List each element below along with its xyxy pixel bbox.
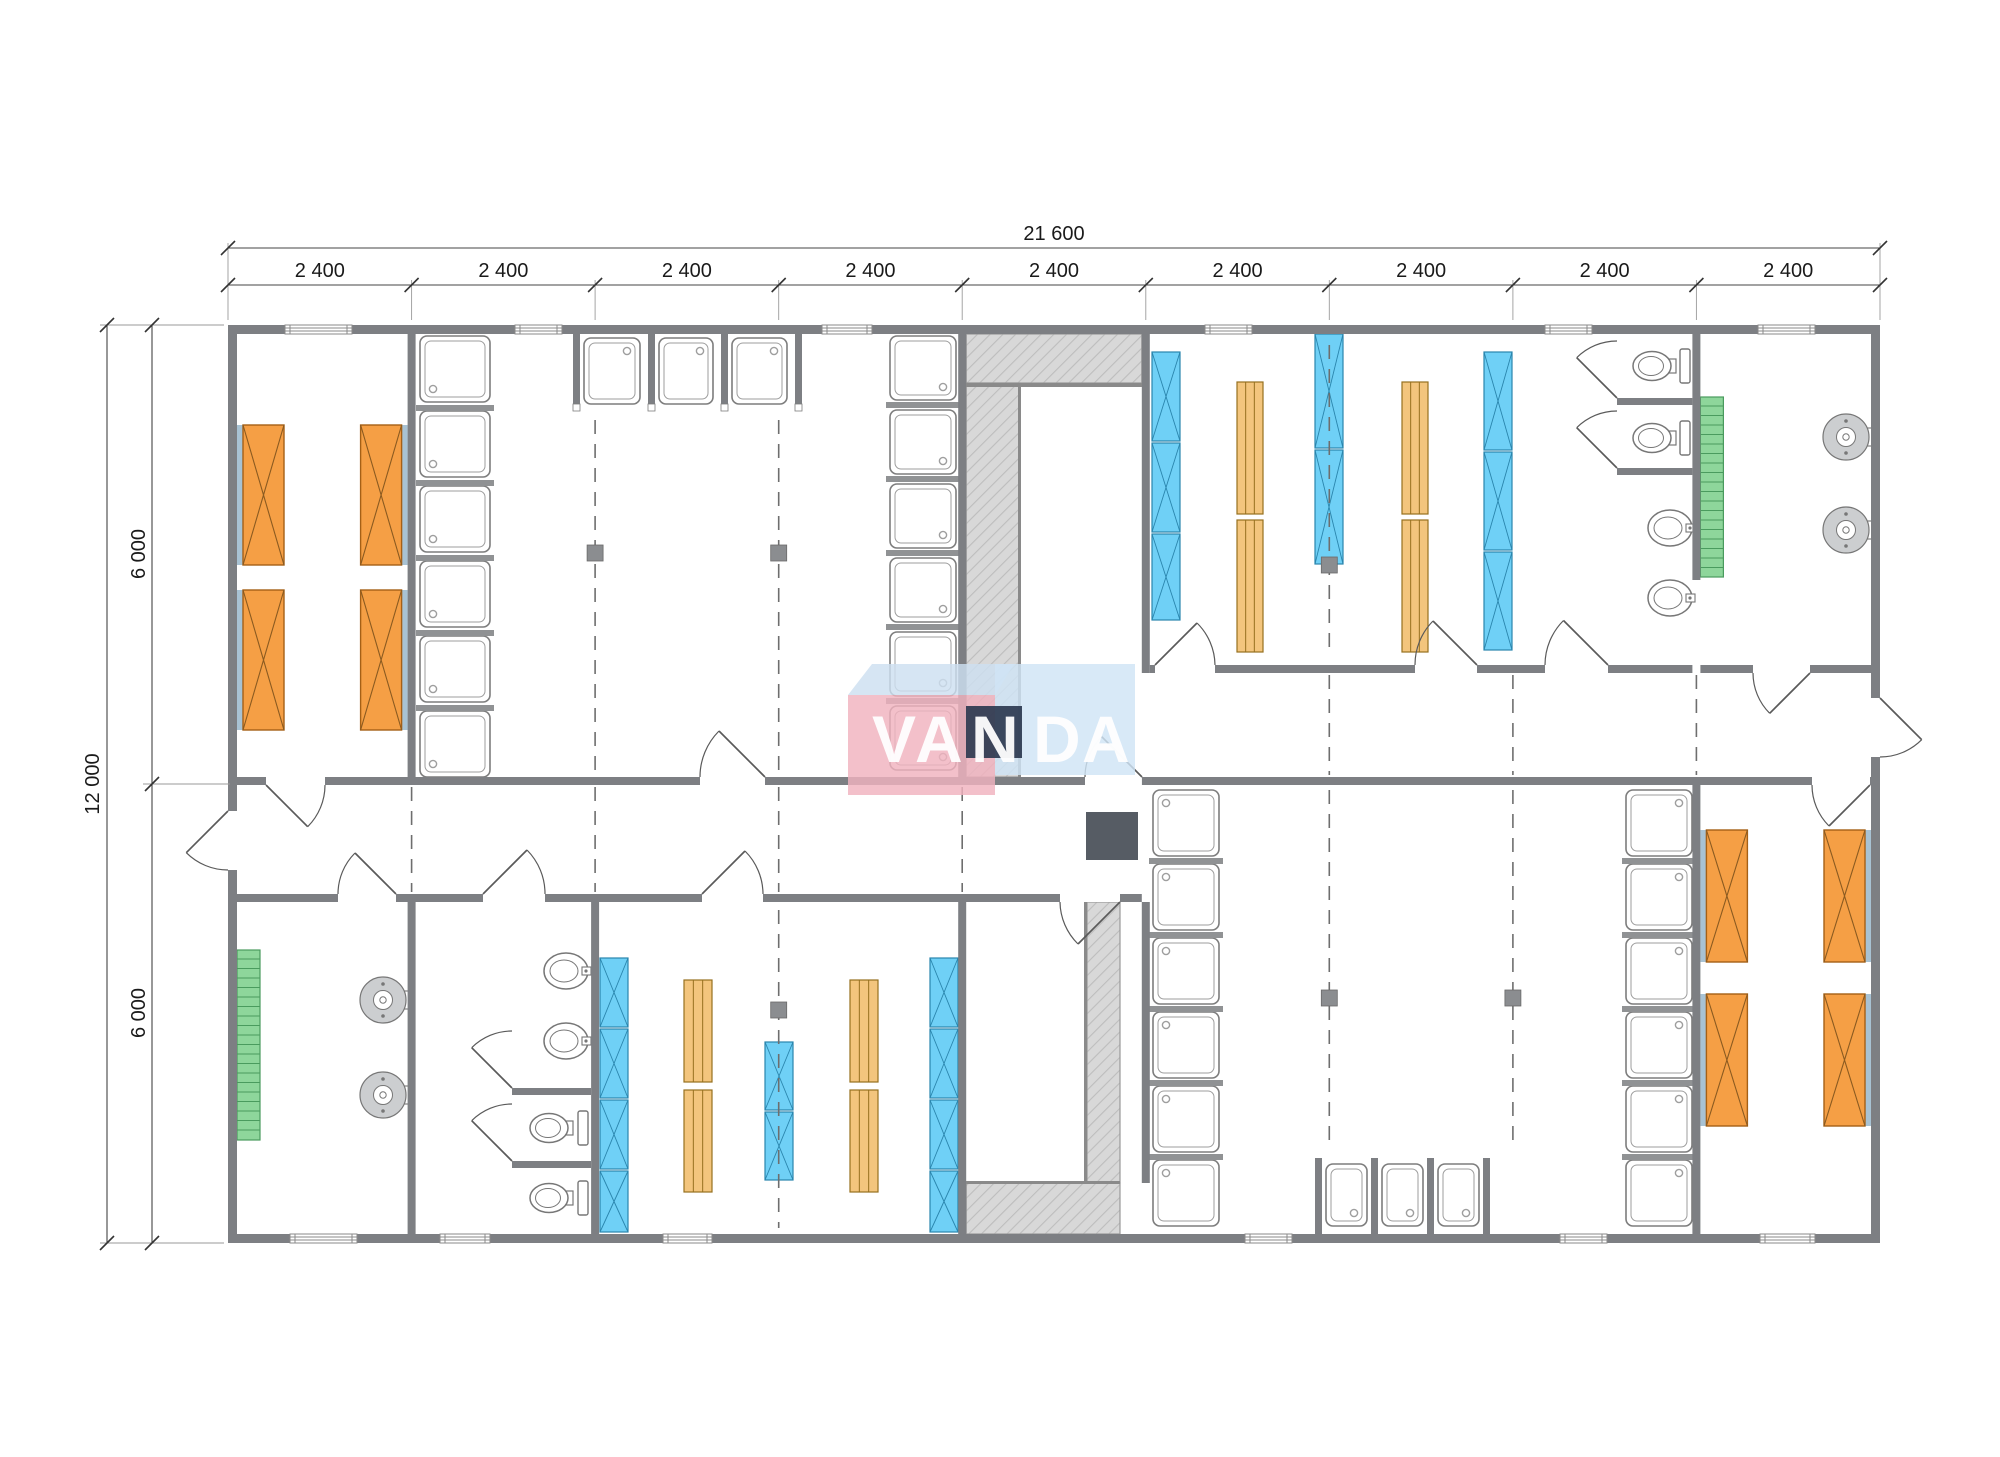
dim-label: 2 400 bbox=[1763, 260, 1813, 282]
vanda-logo-watermark: VANDA bbox=[848, 664, 1135, 795]
dim-label: 2 400 bbox=[845, 260, 895, 282]
logo-letter: A bbox=[1082, 702, 1130, 776]
logo-letter: V bbox=[872, 702, 916, 776]
dim-label: 12 000 bbox=[82, 753, 104, 814]
logo-letter: D bbox=[1033, 702, 1081, 776]
logo-letter: N bbox=[971, 702, 1019, 776]
dim-label: 6 000 bbox=[128, 529, 150, 579]
dim-label: 2 400 bbox=[1029, 260, 1079, 282]
dim-label: 21 600 bbox=[1023, 223, 1084, 245]
dim-label: 6 000 bbox=[128, 988, 150, 1038]
floor-plan-drawing: 21 6002 4002 4002 4002 4002 4002 4002 40… bbox=[0, 0, 2000, 1457]
logo-letter: A bbox=[915, 702, 963, 776]
dim-label: 2 400 bbox=[478, 260, 528, 282]
dim-label: 2 400 bbox=[295, 260, 345, 282]
service-shaft bbox=[1086, 812, 1138, 860]
dim-label: 2 400 bbox=[1580, 260, 1630, 282]
floor-plan-page: 21 6002 4002 4002 4002 4002 4002 4002 40… bbox=[0, 0, 2000, 1457]
dim-label: 2 400 bbox=[662, 260, 712, 282]
dim-label: 2 400 bbox=[1396, 260, 1446, 282]
dim-label: 2 400 bbox=[1213, 260, 1263, 282]
